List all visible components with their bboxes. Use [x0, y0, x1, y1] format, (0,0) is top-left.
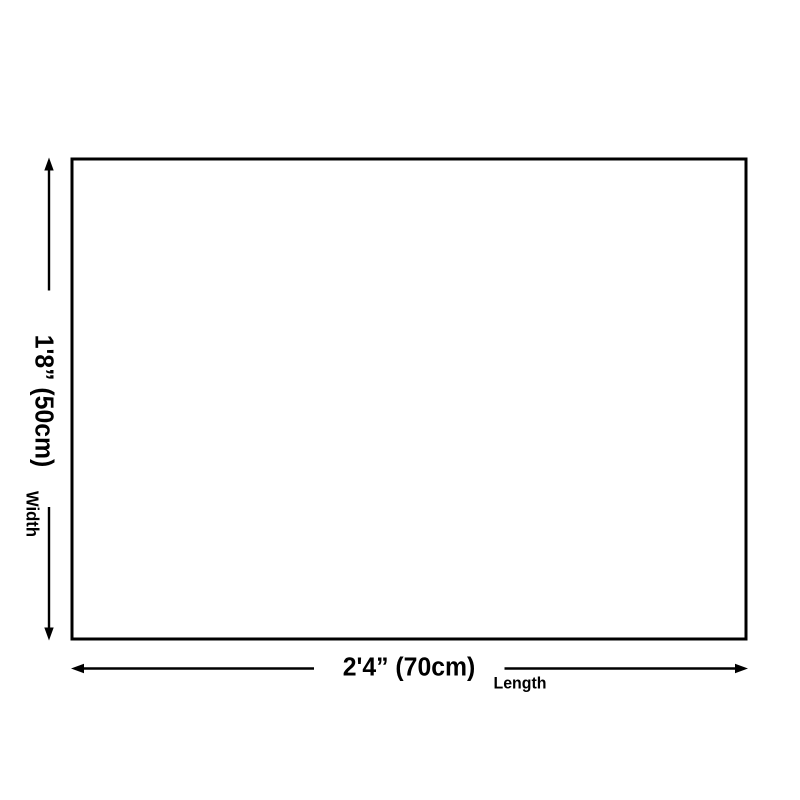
- svg-text:Length: Length: [494, 675, 547, 693]
- svg-text:2'4” (70cm): 2'4” (70cm): [343, 654, 476, 682]
- svg-text:1'8” (50cm): 1'8” (50cm): [30, 335, 58, 468]
- svg-text:Width: Width: [23, 491, 43, 537]
